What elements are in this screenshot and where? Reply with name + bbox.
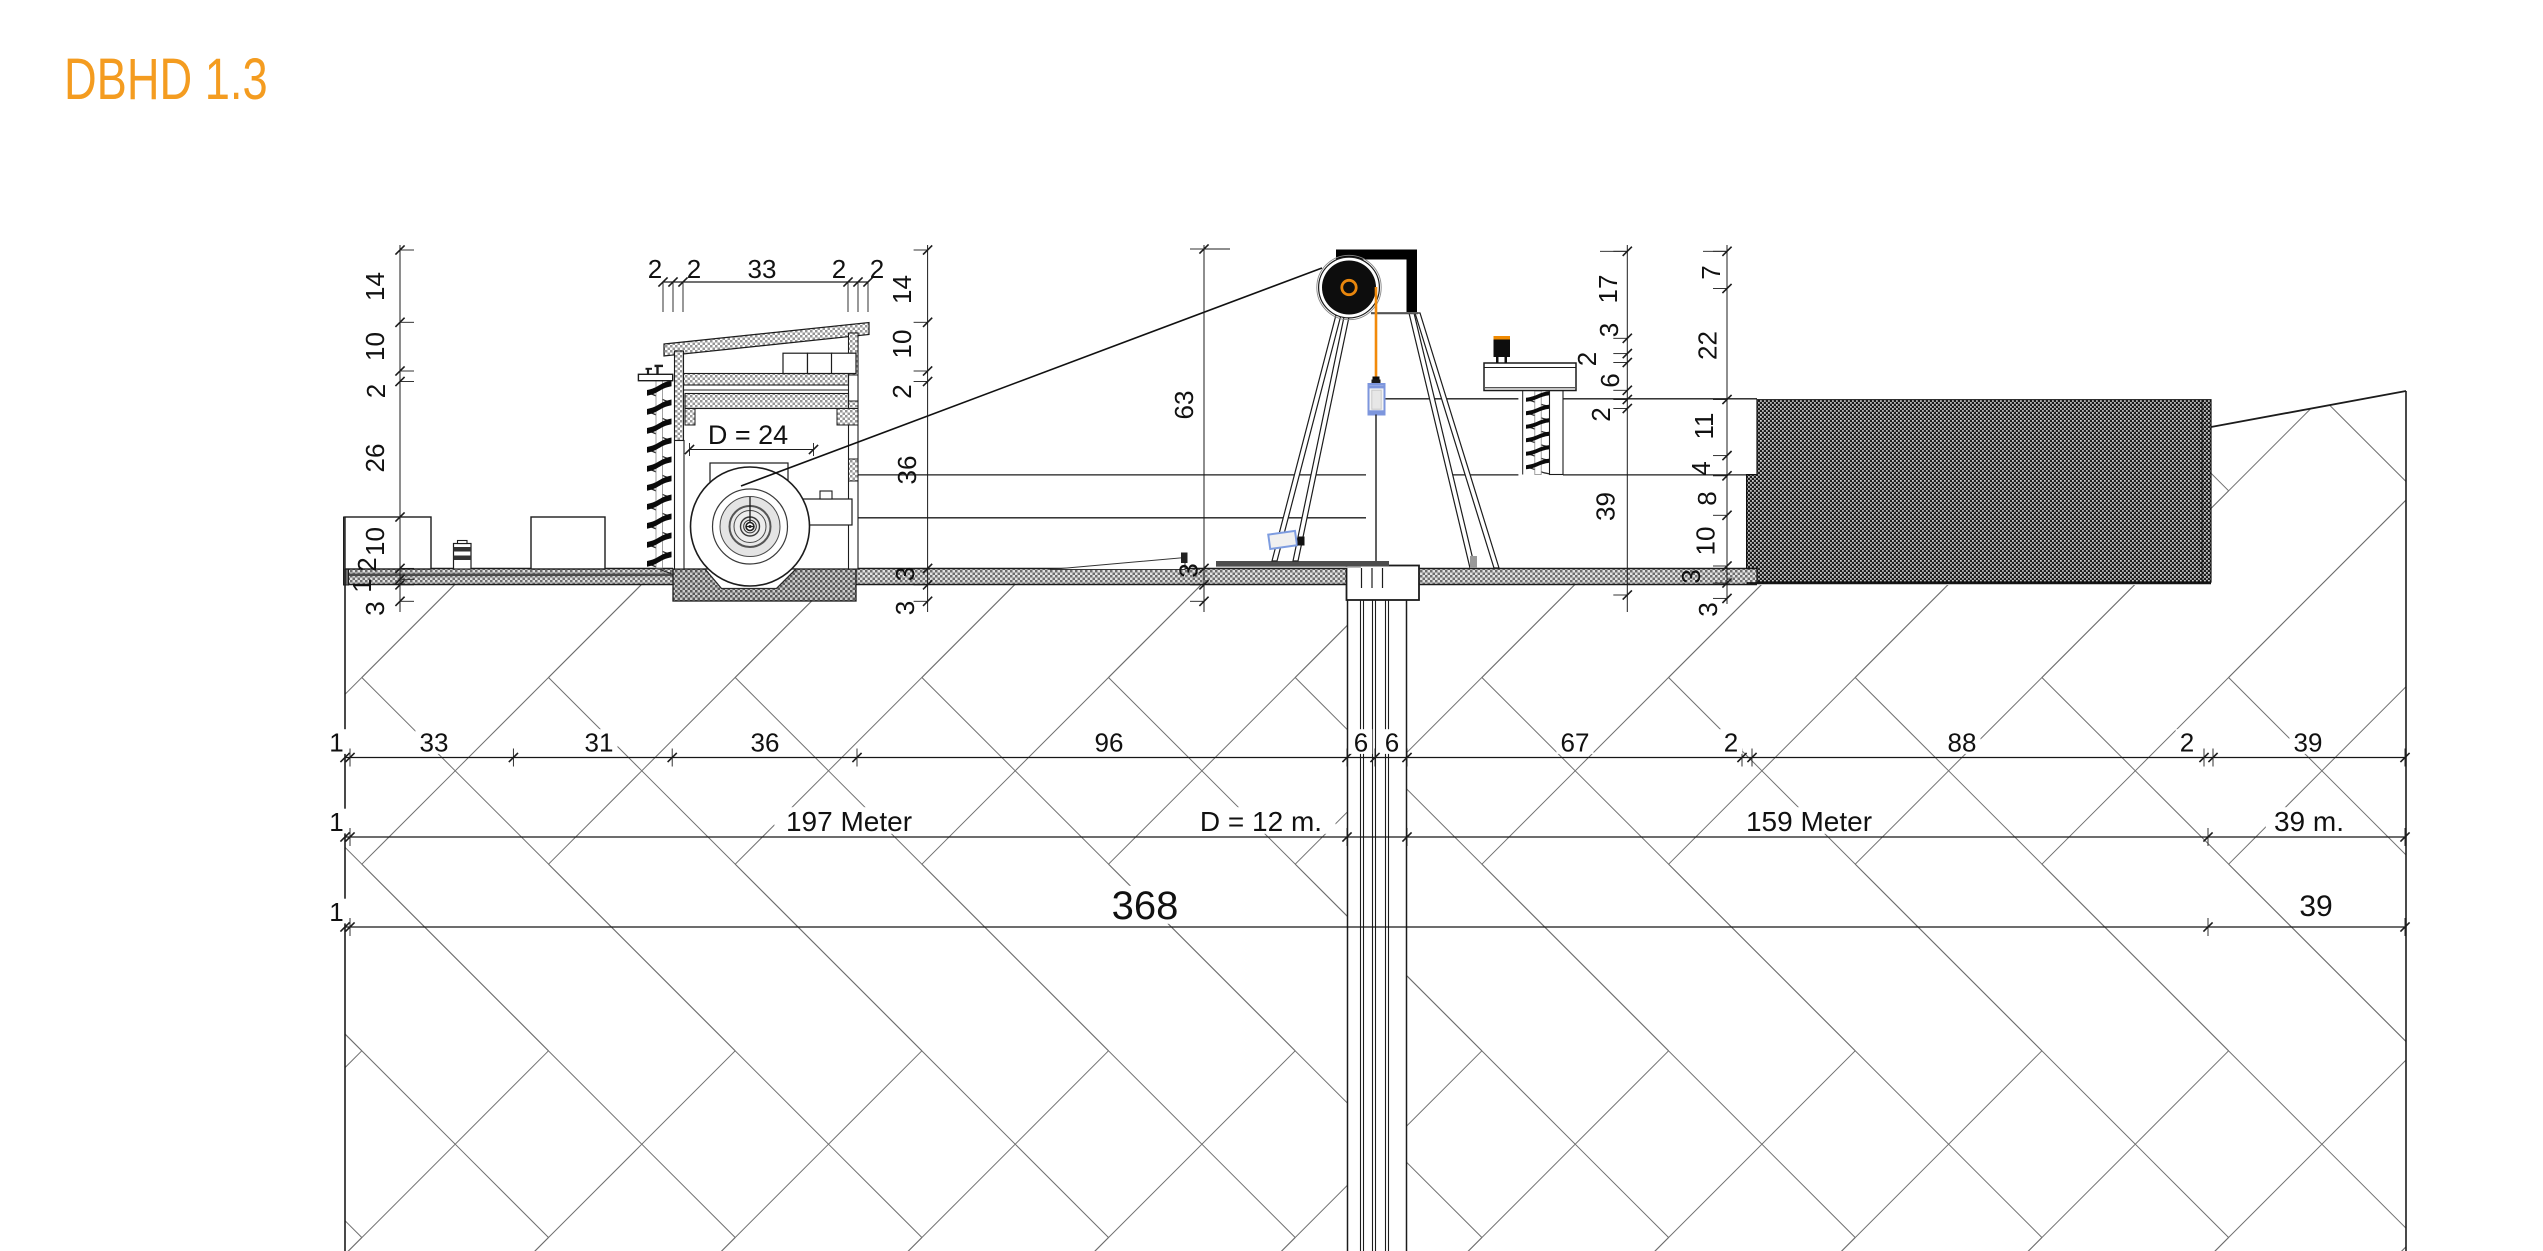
svg-text:2: 2 xyxy=(1572,352,1602,366)
svg-text:88: 88 xyxy=(1948,728,1977,758)
svg-text:1: 1 xyxy=(347,578,377,592)
svg-text:1: 1 xyxy=(329,897,343,927)
svg-text:96: 96 xyxy=(1095,728,1124,758)
svg-text:159 Meter: 159 Meter xyxy=(1746,806,1872,837)
svg-text:2: 2 xyxy=(361,384,391,398)
svg-text:3: 3 xyxy=(890,601,920,615)
svg-text:D = 24: D = 24 xyxy=(708,420,788,450)
svg-text:39 m.: 39 m. xyxy=(2274,806,2344,837)
svg-text:36: 36 xyxy=(751,728,780,758)
svg-text:39: 39 xyxy=(2294,728,2323,758)
svg-text:2: 2 xyxy=(832,254,846,284)
svg-text:2: 2 xyxy=(887,384,917,398)
svg-text:8: 8 xyxy=(1692,491,1722,505)
svg-text:D = 12 m.: D = 12 m. xyxy=(1200,806,1322,837)
svg-text:197 Meter: 197 Meter xyxy=(786,806,912,837)
svg-text:2: 2 xyxy=(2180,728,2194,758)
svg-text:17: 17 xyxy=(1593,275,1623,304)
svg-text:10: 10 xyxy=(360,527,390,556)
svg-text:3: 3 xyxy=(1174,563,1204,577)
svg-text:7: 7 xyxy=(1696,265,1726,279)
svg-text:14: 14 xyxy=(887,275,917,304)
svg-text:2: 2 xyxy=(870,254,884,284)
svg-text:3: 3 xyxy=(890,567,920,581)
svg-text:2: 2 xyxy=(648,254,662,284)
svg-text:67: 67 xyxy=(1561,728,1590,758)
svg-text:4: 4 xyxy=(1686,461,1716,475)
svg-text:39: 39 xyxy=(2299,890,2332,923)
svg-text:2: 2 xyxy=(1586,407,1616,421)
svg-text:36: 36 xyxy=(892,456,922,485)
svg-text:39: 39 xyxy=(1591,492,1621,521)
svg-text:368: 368 xyxy=(1112,884,1179,928)
svg-text:26: 26 xyxy=(360,444,390,473)
svg-text:6: 6 xyxy=(1354,728,1368,758)
svg-text:3: 3 xyxy=(1693,602,1723,616)
svg-text:1: 1 xyxy=(329,807,343,837)
svg-text:22: 22 xyxy=(1693,331,1723,360)
svg-text:6: 6 xyxy=(1595,373,1625,387)
svg-text:3: 3 xyxy=(360,601,390,615)
svg-text:63: 63 xyxy=(1169,391,1199,420)
svg-text:3: 3 xyxy=(1594,323,1624,337)
svg-text:10: 10 xyxy=(887,330,917,359)
svg-text:31: 31 xyxy=(585,728,614,758)
svg-text:3: 3 xyxy=(1676,569,1706,583)
svg-text:2: 2 xyxy=(687,254,701,284)
svg-text:2: 2 xyxy=(1724,728,1738,758)
svg-text:10: 10 xyxy=(360,332,390,361)
svg-text:2: 2 xyxy=(352,557,382,571)
svg-text:6: 6 xyxy=(1385,728,1399,758)
svg-text:11: 11 xyxy=(1689,413,1719,440)
svg-text:14: 14 xyxy=(360,272,390,301)
svg-text:1: 1 xyxy=(329,728,343,758)
svg-text:10: 10 xyxy=(1691,527,1721,556)
svg-text:33: 33 xyxy=(420,728,449,758)
svg-text:DBHD 1.3: DBHD 1.3 xyxy=(64,48,268,113)
svg-text:33: 33 xyxy=(748,254,777,284)
